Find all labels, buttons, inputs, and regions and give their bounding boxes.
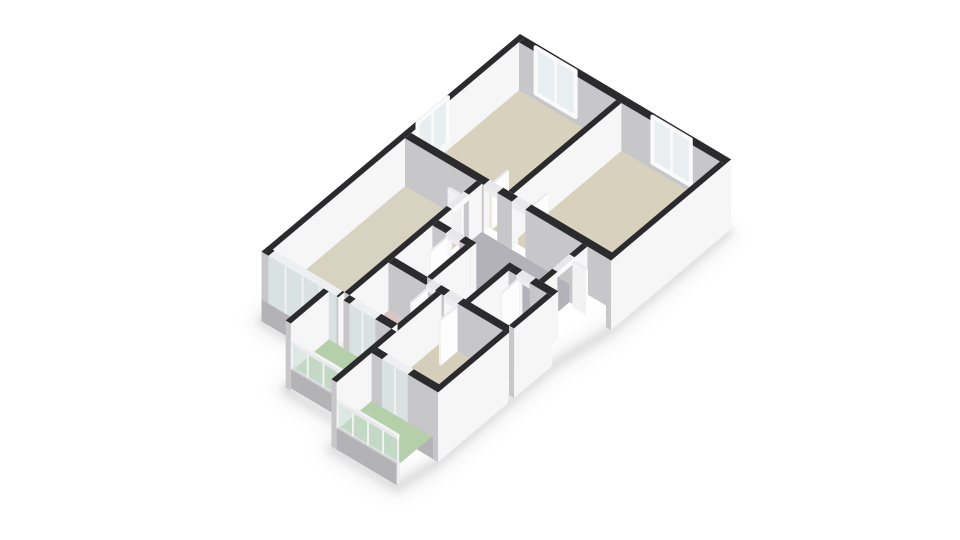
wall-living-east-1 <box>464 181 482 243</box>
floorplan-svg <box>0 0 960 540</box>
wall-topblock-south-2 <box>497 188 518 250</box>
wall-living-sw-2 <box>337 291 345 345</box>
floorplan-render <box>0 0 960 540</box>
door-entry <box>572 261 588 315</box>
